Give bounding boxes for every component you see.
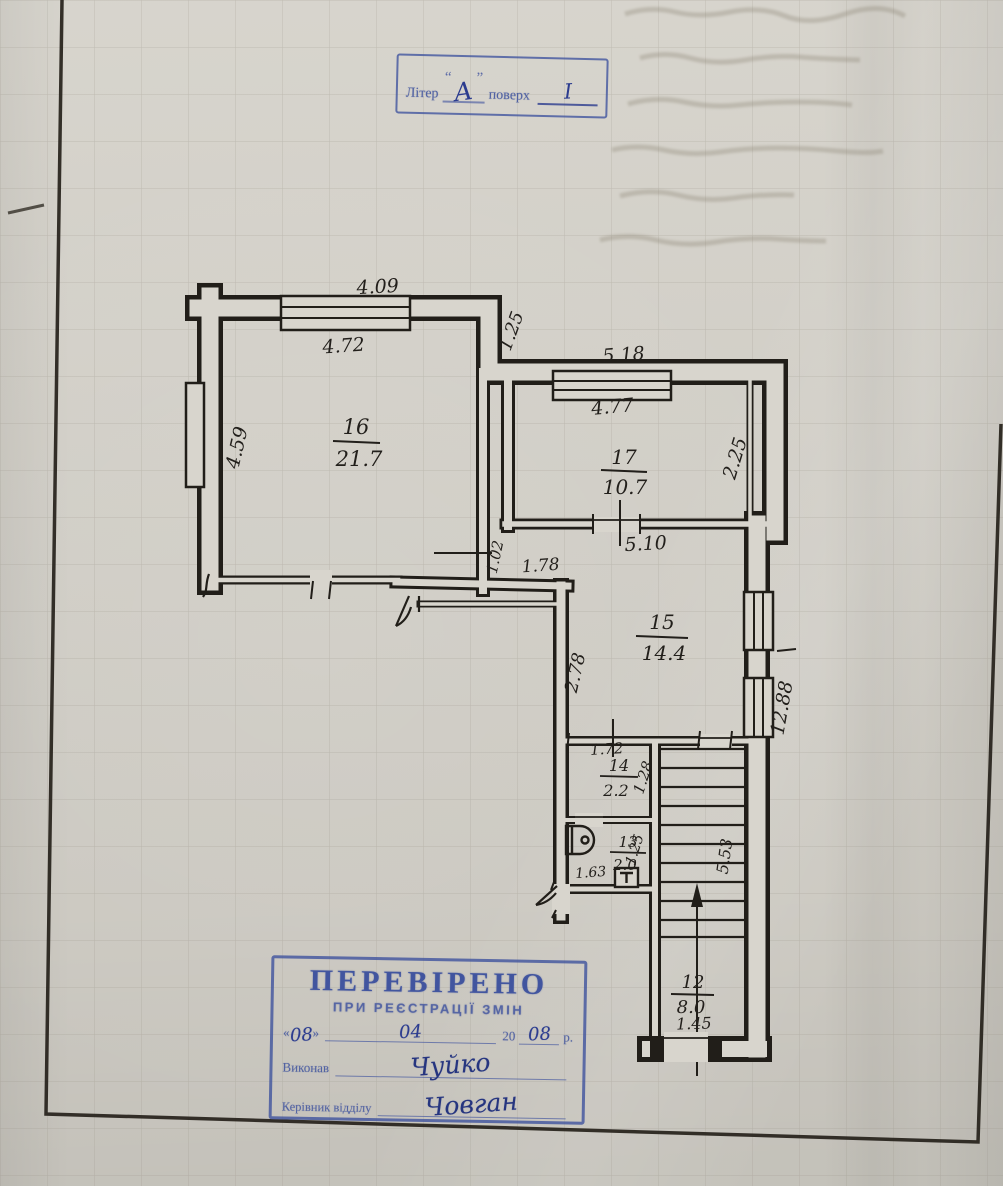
year-suffix: р. [563, 1029, 573, 1045]
dim-1-72: 1.72 [590, 739, 624, 759]
dim-1-45: 1.45 [676, 1013, 712, 1033]
verification-stamp: ПЕРЕВІРЕНО ПРИ РЕЄСТРАЦІЇ ЗМІН « 08 » 04… [269, 955, 588, 1124]
stamp-date-row: « 08 » 04 20 08 р. [283, 1023, 573, 1045]
room-16-area: 21.7 [335, 447, 383, 471]
dim-1-78: 1.78 [521, 555, 560, 578]
date-month: 04 [399, 1027, 422, 1038]
floor-value-underline: І [538, 84, 598, 106]
room-16-number: 16 [343, 415, 370, 439]
room-15-number: 15 [649, 610, 674, 634]
dim-4-09: 4.09 [355, 275, 399, 299]
floor-value: І [564, 84, 573, 98]
room-12-number: 12 [682, 972, 705, 993]
window-room16-top [281, 296, 410, 330]
year-prefix: 20 [502, 1028, 515, 1044]
quote-close: ” [476, 70, 483, 87]
stamp-executor-row: Виконав Чуйко [282, 1056, 572, 1080]
liter-floor-stamp: Літер “ А ” поверх І [395, 53, 608, 118]
head-signature: Човган [425, 1096, 519, 1114]
stamp-title: ПЕРЕВІРЕНО [284, 964, 575, 1001]
liter-label: Літер [406, 86, 439, 103]
date-year: 08 [528, 1029, 551, 1040]
head-label: Керівник відділу [282, 1099, 372, 1116]
stamp-subtitle: ПРИ РЕЄСТРАЦІЇ ЗМІН [283, 998, 573, 1018]
entrance-post-right [708, 1036, 722, 1058]
liter-value: А [450, 81, 477, 102]
left-wall-notch [186, 383, 204, 487]
quote-close: » [312, 1025, 319, 1041]
room-14-number: 14 [609, 756, 629, 775]
window-right-1 [744, 592, 773, 650]
building-entrance [650, 1032, 722, 1062]
dim-1-63: 1.63 [575, 864, 607, 882]
room-17-area: 10.7 [603, 475, 648, 499]
door-room15 [700, 734, 732, 748]
scanned-floor-plan-sheet: 16 21.7 17 10.7 15 14.4 14 2.2 13 2.0 12… [0, 0, 1003, 1186]
entrance-post-left [650, 1036, 664, 1058]
dim-5-10: 5.10 [624, 532, 667, 556]
executor-label: Виконав [282, 1059, 329, 1076]
dim-4-72: 4.72 [321, 334, 366, 359]
poverkh-label: поверх [489, 88, 531, 105]
dim-5-18: 5.18 [602, 343, 646, 368]
liter-value-underline: “ А ” [442, 83, 485, 104]
dim-4-77: 4.77 [589, 394, 635, 420]
executor-signature: Чуйко [411, 1057, 492, 1075]
room-15-area: 14.4 [642, 641, 687, 665]
date-day: 08 [289, 1030, 312, 1041]
room-14-area: 2.2 [602, 781, 628, 800]
stamp-head-row: Керівник відділу Човган [282, 1095, 572, 1119]
room-17-number: 17 [611, 445, 637, 469]
